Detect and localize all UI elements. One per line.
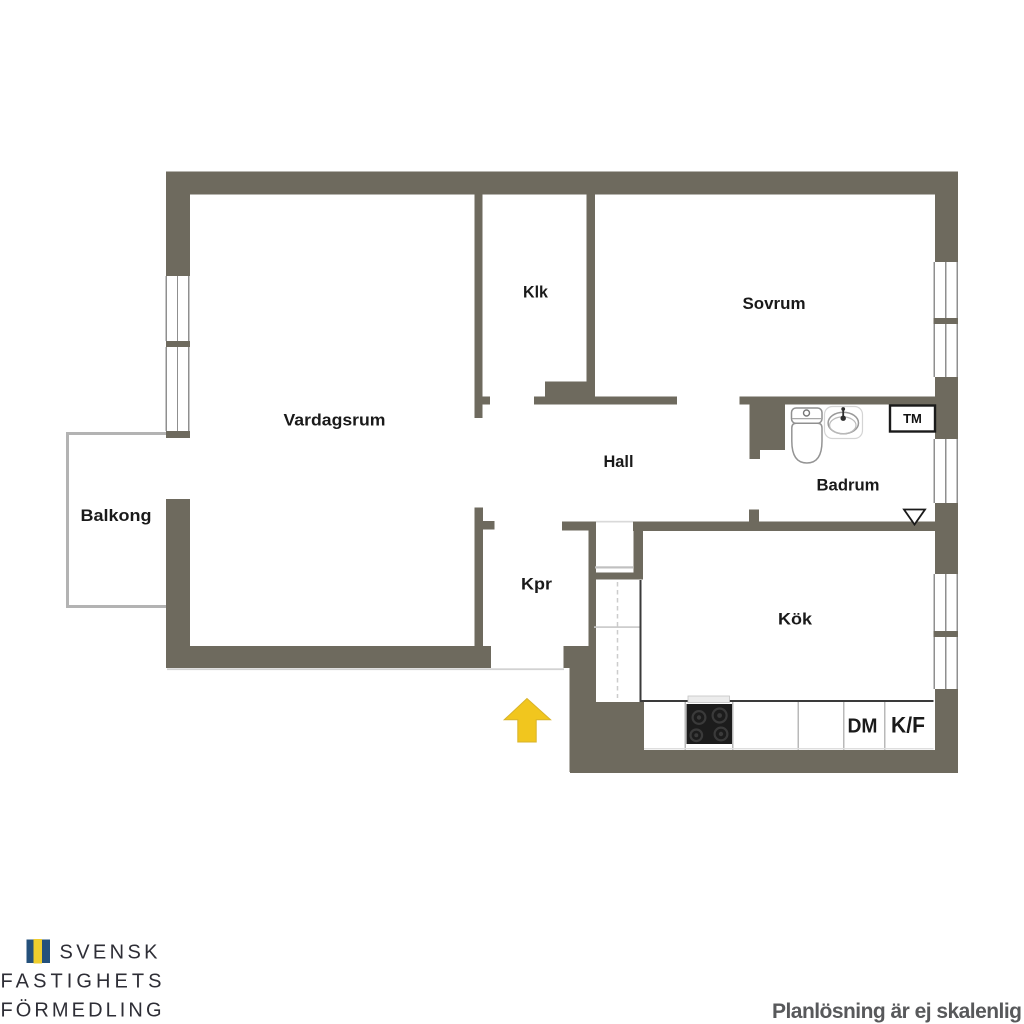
svg-text:Planlösning är ej skalenlig: Planlösning är ej skalenlig xyxy=(772,1000,1022,1023)
svg-text:Balkong: Balkong xyxy=(81,506,152,525)
svg-text:Klk: Klk xyxy=(523,283,549,302)
svg-text:Hall: Hall xyxy=(604,452,634,471)
svg-text:SVENSK: SVENSK xyxy=(60,942,159,964)
svg-text:Kpr: Kpr xyxy=(521,575,552,594)
svg-text:FÖRMEDLING: FÖRMEDLING xyxy=(1,1000,162,1022)
svg-text:FASTIGHETS: FASTIGHETS xyxy=(1,971,162,993)
svg-text:Badrum: Badrum xyxy=(817,476,880,495)
svg-text:Sovrum: Sovrum xyxy=(743,294,806,313)
svg-text:DM: DM xyxy=(848,715,878,737)
svg-text:Kök: Kök xyxy=(778,610,813,629)
svg-text:K/F: K/F xyxy=(891,713,925,738)
svg-text:Vardagsrum: Vardagsrum xyxy=(284,411,386,430)
svg-text:TM: TM xyxy=(903,411,922,426)
